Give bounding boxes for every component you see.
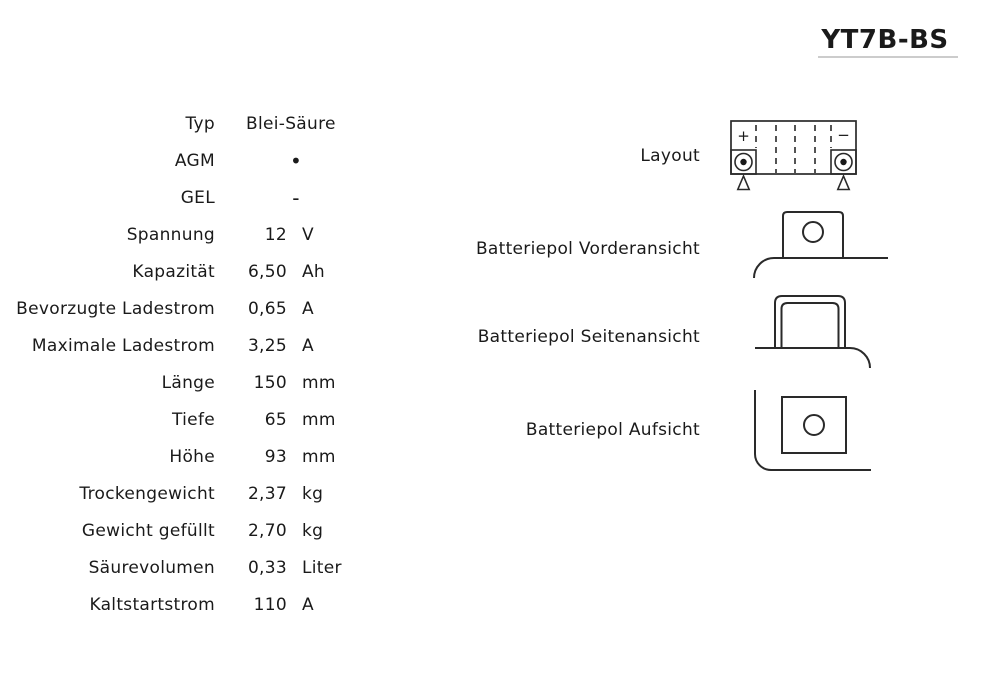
spec-value: 3,25 [246, 336, 287, 356]
spec-value-zone: 150mm [246, 373, 346, 393]
spec-value-zone: 2,70kg [246, 521, 346, 541]
terminal-hole [804, 415, 824, 435]
spec-label: Länge [0, 373, 215, 393]
spec-label: Trockengewicht [0, 484, 215, 504]
spec-value: 12 [246, 225, 287, 245]
spec-unit: kg [302, 521, 323, 541]
spec-value-zone: 93mm [246, 447, 346, 467]
spec-value-zone: 65mm [246, 410, 346, 430]
terminal-hole [803, 222, 823, 242]
spec-row: AGM• [0, 142, 346, 179]
negative-terminal-dot [840, 159, 846, 165]
datasheet-page: YT7B-BS TypBlei-SäureAGM•GEL-Spannung12V… [0, 0, 1000, 674]
spec-row: Spannung12V [0, 216, 346, 253]
spec-label: Gewicht gefüllt [0, 521, 215, 541]
spec-row: TypBlei-Säure [0, 105, 346, 142]
layout-label: Layout [640, 145, 700, 167]
spec-value-zone: 110A [246, 595, 346, 615]
spec-row: Höhe93mm [0, 438, 346, 475]
spec-unit: A [302, 595, 314, 615]
terminal-side-view-label: Batteriepol Seitenansicht [478, 326, 700, 348]
spec-unit: A [302, 336, 314, 356]
spec-label: Spannung [0, 225, 215, 245]
minus-sign: − [837, 126, 850, 144]
spec-value: 110 [246, 595, 287, 615]
spec-value: 2,37 [246, 484, 287, 504]
spec-unit: Liter [302, 558, 342, 578]
spec-value-zone: • [246, 151, 346, 171]
spec-value: 93 [246, 447, 287, 467]
spec-unit: mm [302, 447, 336, 467]
spec-value-zone: 3,25A [246, 336, 346, 356]
battery-shoulder-line [754, 258, 888, 278]
spec-row: Bevorzugte Ladestrom0,65A [0, 290, 346, 327]
spec-label: GEL [0, 188, 215, 208]
spec-row: Kaltstartstrom110A [0, 586, 346, 623]
spec-value: 2,70 [246, 521, 287, 541]
spec-unit: A [302, 299, 314, 319]
spec-value-zone: Blei-Säure [246, 114, 346, 134]
spec-value-zone: 2,37kg [246, 484, 346, 504]
spec-row: Säurevolumen0,33Liter [0, 549, 346, 586]
spec-value: 0,33 [246, 558, 287, 578]
spec-label: Kapazität [0, 262, 215, 282]
spec-value: - [292, 188, 300, 208]
terminal-top-view-label: Batteriepol Aufsicht [526, 419, 700, 441]
spec-row: Tiefe65mm [0, 401, 346, 438]
spec-row: Trockengewicht2,37kg [0, 475, 346, 512]
terminal-block-outline [783, 212, 843, 258]
spec-label: AGM [0, 151, 215, 171]
spec-value-zone: 0,33Liter [246, 558, 346, 578]
spec-value: 0,65 [246, 299, 287, 319]
spec-label: Bevorzugte Ladestrom [0, 299, 215, 319]
spec-unit: V [302, 225, 314, 245]
spec-row: Länge150mm [0, 364, 346, 401]
title-underline [818, 56, 958, 58]
spec-value: Blei-Säure [246, 114, 336, 134]
spec-table: TypBlei-SäureAGM•GEL-Spannung12VKapazitä… [0, 105, 346, 623]
spec-label: Maximale Ladestrom [0, 336, 215, 356]
spec-row: Gewicht gefüllt2,70kg [0, 512, 346, 549]
battery-layout-diagram: + − [723, 112, 873, 207]
right-arrow-marker [838, 176, 849, 190]
spec-label: Typ [0, 114, 215, 134]
spec-label: Tiefe [0, 410, 215, 430]
page-title: YT7B-BS [810, 25, 960, 55]
spec-unit: Ah [302, 262, 325, 282]
spec-row: Maximale Ladestrom3,25A [0, 327, 346, 364]
spec-value: 65 [246, 410, 287, 430]
spec-label: Kaltstartstrom [0, 595, 215, 615]
spec-value-zone: 0,65A [246, 299, 346, 319]
terminal-pad-outline [782, 397, 846, 453]
spec-unit: mm [302, 410, 336, 430]
plus-sign: + [737, 127, 750, 145]
spec-unit: mm [302, 373, 336, 393]
terminal-side-view-diagram [745, 290, 885, 382]
terminal-front-view-diagram [745, 205, 895, 290]
spec-value-zone: 12V [246, 225, 346, 245]
spec-unit: kg [302, 484, 323, 504]
terminal-inner-outline [782, 303, 839, 348]
left-arrow-marker [738, 176, 749, 190]
spec-row: GEL- [0, 179, 346, 216]
spec-value: 6,50 [246, 262, 287, 282]
battery-corner-line [755, 390, 871, 470]
spec-value: 150 [246, 373, 287, 393]
spec-value-zone: 6,50Ah [246, 262, 346, 282]
spec-row: Kapazität6,50Ah [0, 253, 346, 290]
spec-value: • [290, 151, 302, 171]
positive-terminal-dot [740, 159, 746, 165]
terminal-top-view-diagram [745, 388, 885, 483]
spec-value-zone: - [246, 188, 346, 208]
spec-label: Säurevolumen [0, 558, 215, 578]
battery-shoulder-line [755, 348, 870, 368]
spec-label: Höhe [0, 447, 215, 467]
terminal-front-view-label: Batteriepol Vorderansicht [476, 238, 700, 260]
